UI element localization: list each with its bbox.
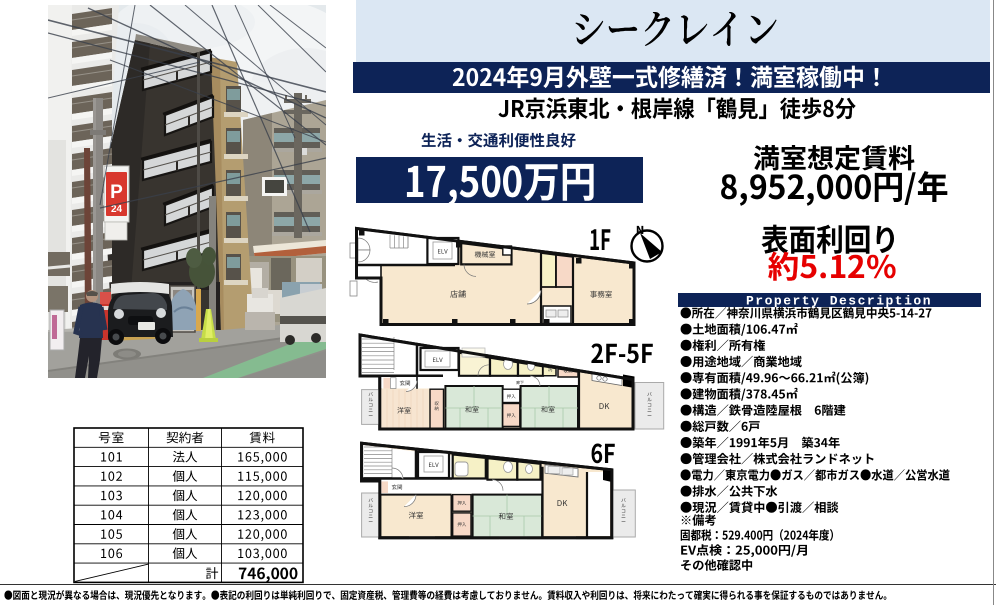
svg-text:Property Description: Property Description xyxy=(746,294,932,309)
svg-text:P: P xyxy=(110,182,123,203)
